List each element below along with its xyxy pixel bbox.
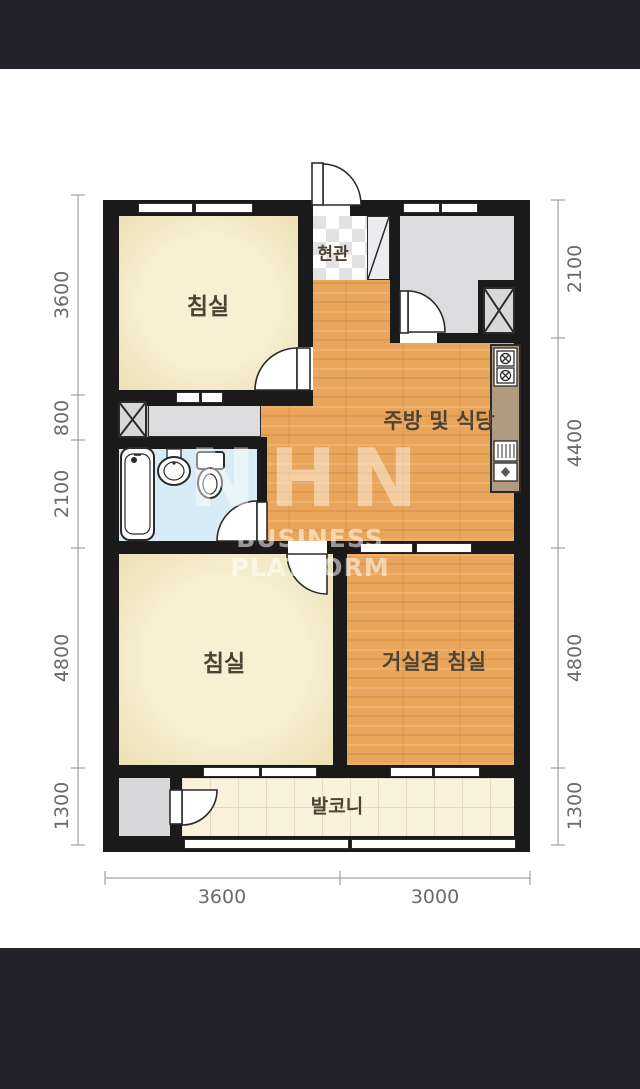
dim-label: 1300 xyxy=(51,782,73,830)
dim-label: 4800 xyxy=(51,634,73,682)
front-door-icon xyxy=(312,163,361,205)
floorplan-image: 침실 현관 주방 및 식당 침실 거실겸 침실 발코니 3600 800 210… xyxy=(0,0,640,1089)
door-icon xyxy=(217,501,267,541)
sink-basin-icon xyxy=(158,449,190,485)
dim-label: 3600 xyxy=(198,886,246,908)
room-label-living-bedroom: 거실겸 침실 xyxy=(382,646,486,676)
floorplan-viewport: 침실 현관 주방 및 식당 침실 거실겸 침실 발코니 3600 800 210… xyxy=(0,69,640,948)
bathtub-icon xyxy=(121,448,154,540)
room-label-entrance: 현관 xyxy=(317,240,348,265)
toilet-icon xyxy=(197,452,224,498)
dim-label: 4800 xyxy=(564,634,586,682)
dim-label: 2100 xyxy=(51,470,73,518)
stove-icon xyxy=(494,348,517,386)
dim-label: 2100 xyxy=(564,245,586,293)
plan-symbols xyxy=(0,0,640,1089)
door-icon xyxy=(287,554,327,594)
room-label-kitchen: 주방 및 식당 xyxy=(383,405,494,435)
door-icon xyxy=(255,348,310,390)
duct-shaft-icon xyxy=(484,288,514,333)
room-label-balcony: 발코니 xyxy=(311,792,363,819)
sink-icon xyxy=(494,463,517,481)
dish-rack-icon xyxy=(494,441,517,461)
door-icon xyxy=(400,291,445,333)
cabinet-diagonal xyxy=(368,217,389,279)
room-label-bedroom-top: 침실 xyxy=(187,287,229,321)
duct-shaft-icon xyxy=(119,402,146,437)
door-icon xyxy=(170,790,217,825)
dim-label: 800 xyxy=(51,400,73,436)
app-screen: 침실 현관 주방 및 식당 침실 거실겸 침실 발코니 3600 800 210… xyxy=(0,0,640,1089)
kitchen-counter xyxy=(491,345,520,492)
dim-label: 3600 xyxy=(51,271,73,319)
dim-label: 1300 xyxy=(564,782,586,830)
dim-label: 4400 xyxy=(564,419,586,467)
dim-label: 3000 xyxy=(411,886,459,908)
room-label-bedroom-bottom: 침실 xyxy=(203,644,245,678)
